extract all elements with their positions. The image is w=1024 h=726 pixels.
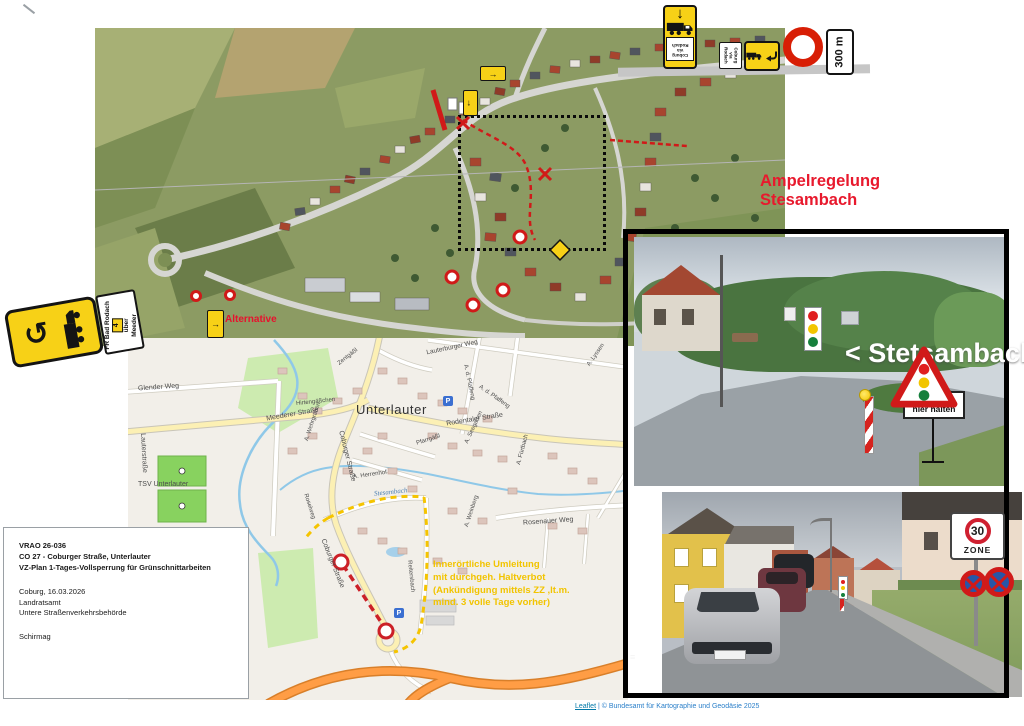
red-light [841, 580, 845, 584]
detour-note-line3: (Ankündigung mittels ZZ ,lt.m. [433, 585, 570, 598]
street-lamp-arm [810, 518, 832, 531]
detour-note-line4: mind. 3 volle Tage vorher) [433, 597, 570, 610]
house-roof [642, 265, 720, 295]
attribution-text: | © Bundesamt für Kartographie und Geodä… [596, 703, 759, 710]
down-arrow-icon: → [466, 99, 476, 108]
destination-sign-rotated: Coburg via Rodach [719, 42, 742, 69]
alternative-label: Alternative [225, 314, 277, 325]
truck-turn-left-sign [744, 41, 780, 71]
ampelregelung-note: Ampelregelung Stesambach [760, 172, 880, 210]
order-subject1: CO 27 - Coburger Straße, Unterlauter [19, 552, 240, 563]
detour-arrow-sign-small-2: → [463, 90, 478, 116]
map-label-tsv-unterlauter: TSV Unterlauter [138, 481, 188, 488]
layers-icon: ≡ [630, 653, 640, 661]
car-window [766, 572, 798, 584]
leaflet-link[interactable]: Leaflet [575, 703, 596, 710]
parking-icon: P [443, 396, 453, 406]
order-subject2: VZ-Plan 1-Tages-Vollsperrung für Grünsch… [19, 563, 240, 574]
distance-300m-text: 300 m [834, 36, 846, 67]
traffic-light-graphic [804, 307, 822, 351]
bench [732, 333, 758, 342]
no-vehicles-sign [783, 27, 823, 67]
no-stopping-sign [960, 570, 987, 597]
down-arrow-icon: ↓ [676, 7, 684, 21]
small-sign [784, 307, 796, 321]
yellow-light [808, 324, 818, 334]
house-window [674, 548, 689, 567]
truck-icon [746, 50, 762, 62]
destination-sign-text: Coburg via Rodach [723, 47, 738, 64]
zone-30-number: 30 [965, 518, 991, 544]
parking-icon: P [394, 608, 404, 618]
truck-icon [666, 21, 694, 36]
house-window [924, 532, 938, 550]
street-sign-plate [841, 311, 859, 325]
destination-plate: Coburg via Rodach [666, 37, 694, 61]
ampelregelung-line2: Stesambach [760, 191, 880, 210]
right-arrow-icon: → [211, 319, 220, 329]
detour-note-line1: Innerörtliche Umleitung [433, 559, 570, 572]
ampelregelung-line1: Ampelregelung [760, 172, 880, 191]
detour-arrow-sign-small-1: → [480, 66, 506, 81]
order-signer: Schirmag [19, 632, 240, 643]
detour-arrow-sign-small-3: → [207, 310, 224, 338]
house-window [682, 309, 694, 325]
house-window [702, 548, 717, 567]
closure-endpoint-south [379, 624, 393, 638]
mini-signal-graphic [838, 576, 848, 600]
no-stopping-sign-with-arrows [984, 567, 1014, 597]
detour-destination-text: FR Bad Rodach 4 über Meeder [104, 294, 139, 356]
sign-post-base [922, 461, 944, 463]
house-window [654, 309, 666, 325]
license-plate [714, 650, 746, 660]
truck-uturn-sign: ↺ [4, 295, 105, 368]
detour-note-line2: mit durchgeh. Haltverbot [433, 572, 570, 585]
order-authority2: Untere Straßenverkehrsbehörde [19, 608, 240, 619]
sign-post [932, 419, 934, 462]
house-roof [724, 526, 794, 546]
page-corner-mark [23, 4, 35, 14]
yellow-light [841, 586, 845, 590]
order-authority1: Landratsamt [19, 598, 240, 609]
traffic-signals-warning-sign [890, 346, 958, 408]
map-label-unterlauter: Unterlauter [356, 402, 427, 417]
detour-note: Innerörtliche Umleitung mit durchgeh. Ha… [433, 559, 570, 610]
truck-icon-vertical [58, 307, 87, 350]
order-place-date: Coburg, 16.03.2026 [19, 587, 240, 598]
map-attribution: Leaflet | © Bundesamt für Kartographie u… [575, 703, 759, 710]
car-windshield [696, 592, 760, 612]
detour-truck-down-sign: ↓ Coburg via Rodach [663, 5, 697, 69]
destination-plate-text: Coburg via Rodach [672, 42, 689, 57]
zone-30-sign: 30 ZONE [950, 512, 1005, 560]
uturn-arrow-icon: ↺ [22, 318, 52, 352]
warning-lamp [859, 389, 871, 401]
order-text-box: VRAO 26-036 CO 27 - Coburger Straße, Unt… [3, 527, 249, 699]
mini-barrier-pole [839, 598, 845, 612]
order-ref: VRAO 26-036 [19, 541, 240, 552]
green-light [808, 337, 818, 347]
utility-pole [720, 255, 723, 407]
zone-30-word: ZONE [964, 545, 992, 555]
right-arrow-icon: → [489, 69, 498, 79]
vz-plan-page: → → → Alternative [0, 0, 1024, 726]
red-light [808, 311, 818, 321]
green-light [841, 593, 845, 597]
turn-left-arrow-icon [763, 47, 778, 65]
distance-300m-sign: 300 m [826, 29, 854, 75]
barrier-beacon-pole [864, 396, 874, 454]
